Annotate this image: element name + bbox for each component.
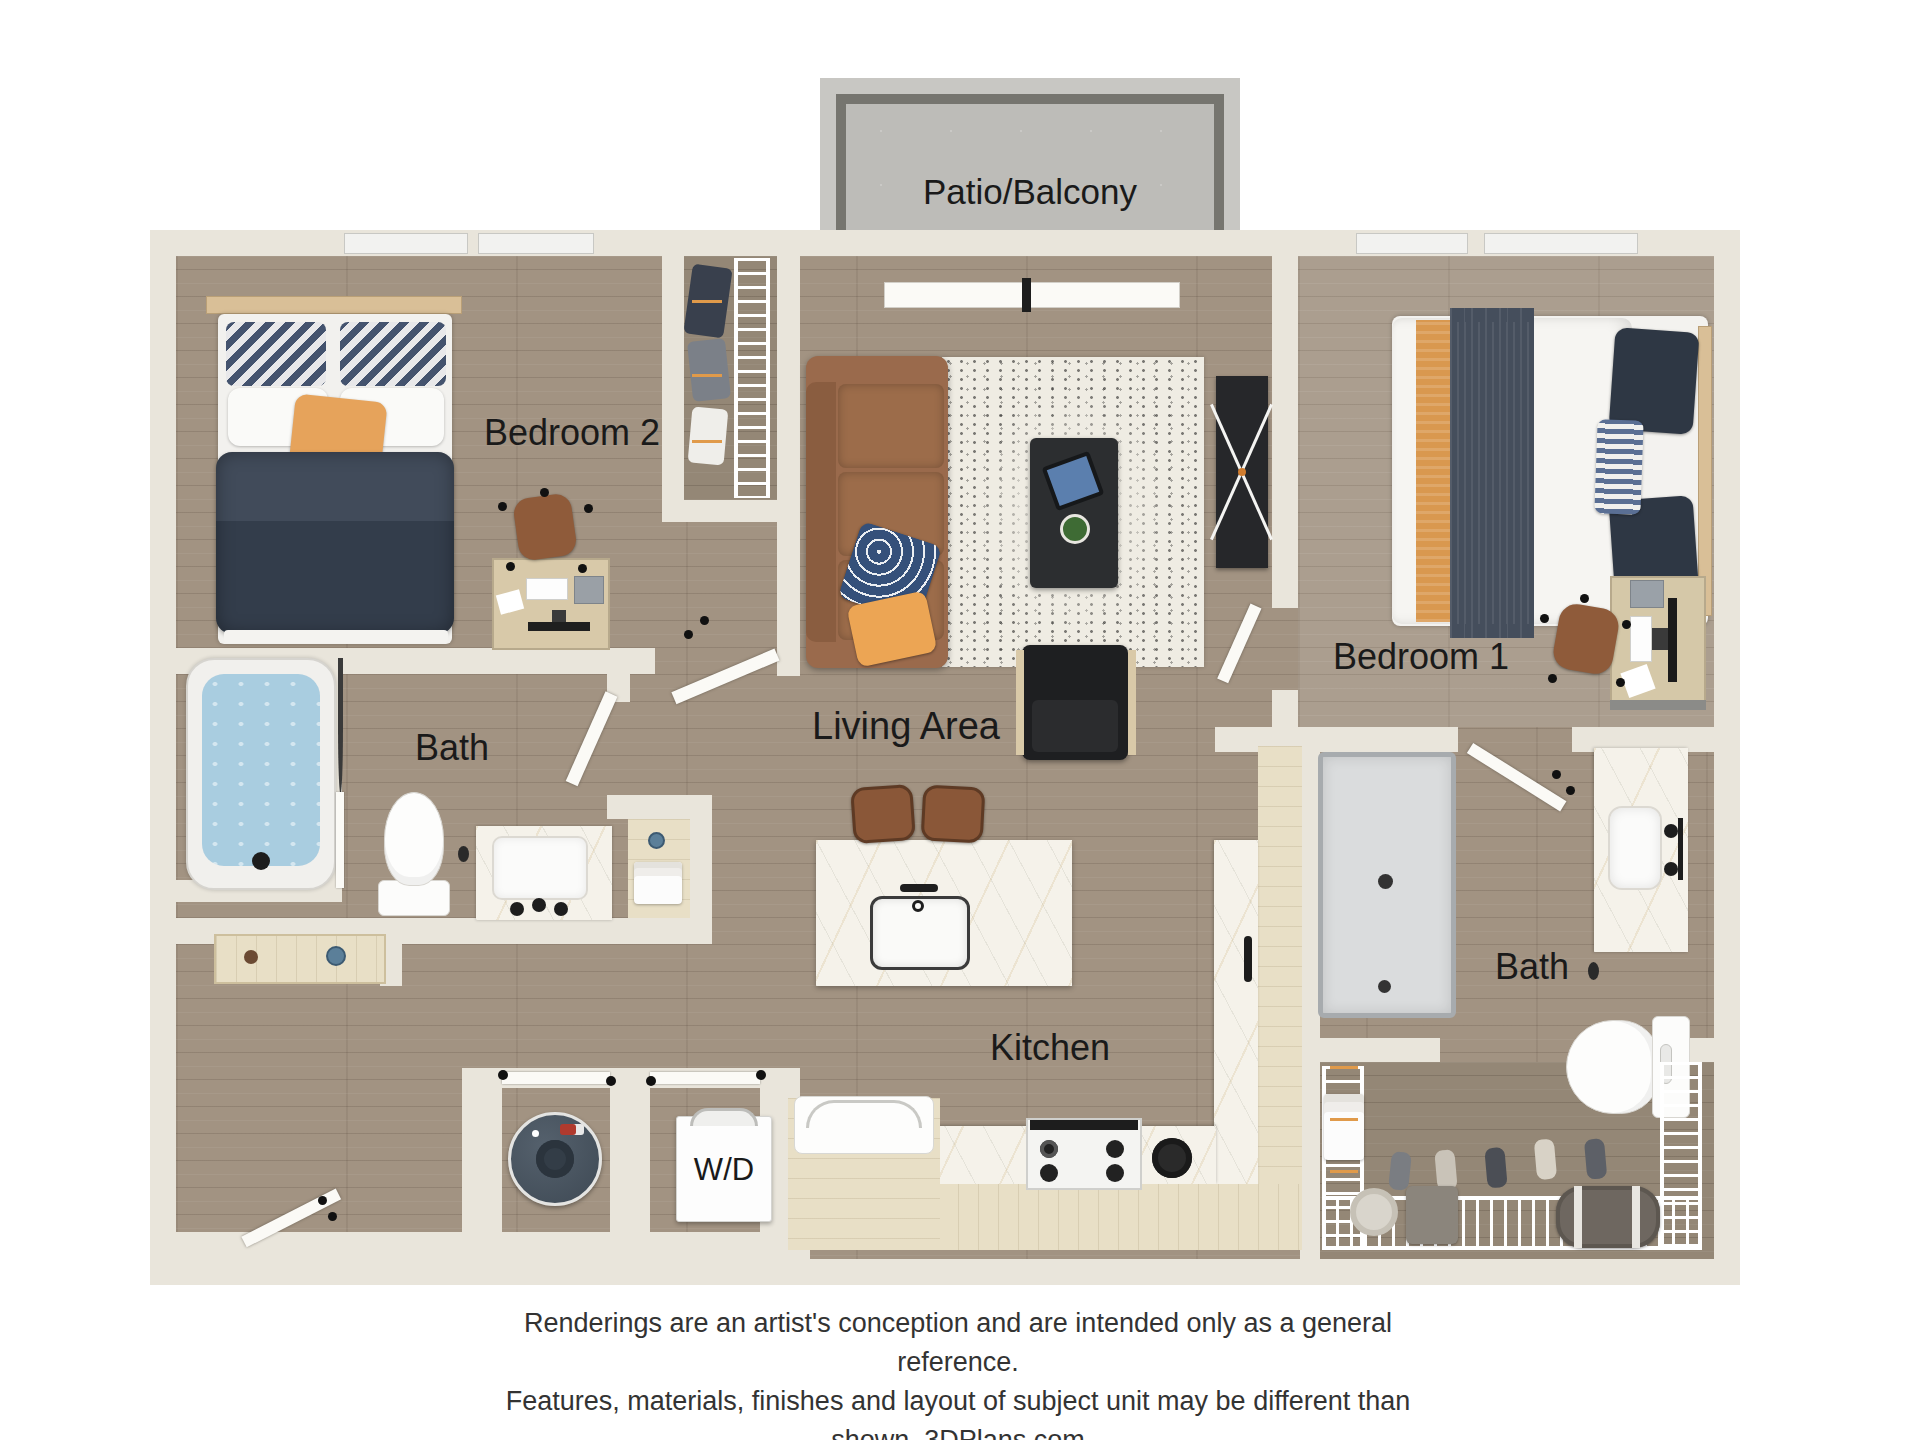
toilet-bowl: [384, 792, 444, 886]
keyboard: [526, 578, 568, 600]
vanity-sink: [492, 836, 588, 900]
living-area-label: Living Area: [812, 705, 1000, 748]
kitchen-counter-right: [1214, 840, 1258, 1196]
wall-wd-post-mid: [610, 1068, 650, 1232]
fridge-handle-arc: [806, 1100, 922, 1128]
chair-casters: [1580, 594, 1589, 603]
bed2-sheet-edge: [224, 630, 448, 643]
disclaimer: Renderings are an artist's conception an…: [477, 1304, 1439, 1440]
desk1-edge: [1610, 700, 1706, 710]
monitor: [528, 622, 590, 631]
tv-console-knob: [1238, 468, 1246, 476]
island-faucet-base: [912, 900, 924, 912]
hanging-clothes: [688, 407, 729, 466]
wall-b2-closet-left: [662, 256, 684, 522]
wall-b2-closet-right: [777, 256, 800, 676]
wall-bedroom1-left-upper: [1272, 230, 1298, 608]
window: [344, 233, 468, 254]
monitor-mount: [1652, 628, 1668, 650]
wall-right: [1714, 230, 1740, 1285]
shower-valve: [1378, 874, 1393, 889]
bed1-pillow-navy: [1609, 327, 1700, 435]
plant: [1060, 514, 1090, 544]
stove-burners: [1040, 1140, 1058, 1158]
bath-left-label: Bath: [415, 727, 489, 769]
bench-plate: [326, 946, 346, 966]
bedroom1-label: Bedroom 1: [1333, 636, 1509, 678]
hanger: [692, 374, 722, 377]
towels: [634, 862, 682, 904]
door-hinge: [700, 616, 709, 625]
window: [478, 233, 594, 254]
disclaimer-line1: Renderings are an artist's conception an…: [477, 1304, 1439, 1382]
wall-bottom: [150, 1259, 1740, 1285]
closet-shelving-right: [1660, 1062, 1702, 1250]
accent-chair-frame: [1016, 650, 1024, 755]
shower-drain: [1378, 980, 1391, 993]
floor-plan: W/D: [0, 0, 1920, 1440]
monitor-stand: [552, 610, 566, 622]
bed2-pillow-pattern: [226, 322, 326, 386]
bifold-door-rail: [502, 1072, 610, 1084]
chair-casters: [540, 488, 549, 497]
toilet-bowl: [1566, 1020, 1660, 1114]
sliding-door-handle: [1022, 278, 1031, 312]
bar-stool: [921, 784, 986, 843]
toilet-paper-holder: [458, 846, 469, 862]
water-heater-cap: [536, 1140, 574, 1178]
kitchen-tall-cabinets: [1258, 746, 1302, 1198]
shoes-row: [1434, 1149, 1457, 1191]
tub-faucet: [252, 852, 270, 870]
sofa-cushion: [838, 384, 944, 468]
towels: [1324, 1094, 1364, 1160]
water-heater-valve: [560, 1124, 576, 1135]
oven-handle: [1244, 936, 1252, 982]
toilet-paper-holder: [1588, 962, 1599, 980]
bed2-headboard: [206, 296, 462, 314]
wall-niche-right: [690, 795, 712, 944]
entry-door-handle: [318, 1196, 327, 1205]
closet-shelving: [734, 258, 770, 498]
duffel-strap: [1574, 1186, 1582, 1248]
disclaimer-line2: Features, materials, finishes and layout…: [477, 1382, 1439, 1440]
window: [1484, 233, 1638, 254]
bed1-throw-navy: [1450, 308, 1534, 638]
hat: [1350, 1188, 1398, 1236]
soap-dish: [648, 832, 665, 849]
bedroom2-label: Bedroom 2: [484, 412, 660, 454]
keyboard: [1630, 616, 1652, 662]
hanging-clothes: [687, 338, 731, 402]
water-heater-light: [532, 1130, 539, 1137]
book: [574, 576, 604, 604]
wall-entry-bottom-band: [176, 1232, 810, 1259]
wall-kitchen-bath: [1300, 748, 1320, 1259]
sliding-door: [884, 282, 1180, 308]
stove-back-panel: [1030, 1120, 1138, 1130]
wall-left: [150, 230, 176, 1285]
bar-stool: [850, 784, 916, 844]
bench-knob: [244, 950, 258, 964]
kitchen-label: Kitchen: [990, 1027, 1110, 1069]
vessel-sink: [1608, 806, 1662, 890]
pan: [1152, 1138, 1192, 1178]
island-faucet: [900, 884, 938, 892]
book: [1630, 580, 1664, 608]
bed1-headboard: [1698, 326, 1712, 616]
sofa-back: [806, 382, 836, 642]
patio-label: Patio/Balcony: [923, 172, 1137, 212]
hanger: [692, 440, 722, 443]
monitor: [1668, 598, 1677, 682]
bed2-pillow-pattern: [340, 322, 446, 386]
laundry-label: W/D: [694, 1152, 754, 1188]
bed1-pillow-striped: [1594, 419, 1643, 515]
desk-chair: [512, 492, 578, 561]
hanger: [1330, 1170, 1358, 1173]
wall-bed1-bath-left: [1215, 727, 1458, 752]
kitchen-base-cabinets: [898, 1184, 1302, 1250]
hanger: [692, 300, 722, 303]
faucet-bar: [1678, 818, 1683, 880]
wall-b2-closet-bottom: [684, 500, 777, 522]
vanity-faucet: [1664, 824, 1678, 838]
bathtub-water: [202, 674, 320, 866]
shoes: [1388, 1151, 1412, 1191]
door-hinge: [1552, 770, 1561, 779]
accent-chair-seat: [1032, 700, 1118, 752]
wall-wd-post-left: [462, 1068, 502, 1232]
curtain-rod: [336, 792, 344, 888]
vanity-faucet: [532, 898, 546, 912]
storage-box: [1406, 1186, 1458, 1244]
bifold-door-rail: [650, 1072, 760, 1084]
wall-closet-top-left: [1320, 1038, 1440, 1062]
bifold-pivots: [498, 1070, 508, 1080]
entry-bench: [214, 934, 386, 984]
shower-curtain: [338, 658, 343, 794]
washer-door-arc: [690, 1108, 758, 1126]
bed2-duvet: [216, 452, 454, 634]
bath-right-label: Bath: [1495, 946, 1569, 988]
window: [1356, 233, 1468, 254]
duffel-bag: [1556, 1186, 1660, 1248]
